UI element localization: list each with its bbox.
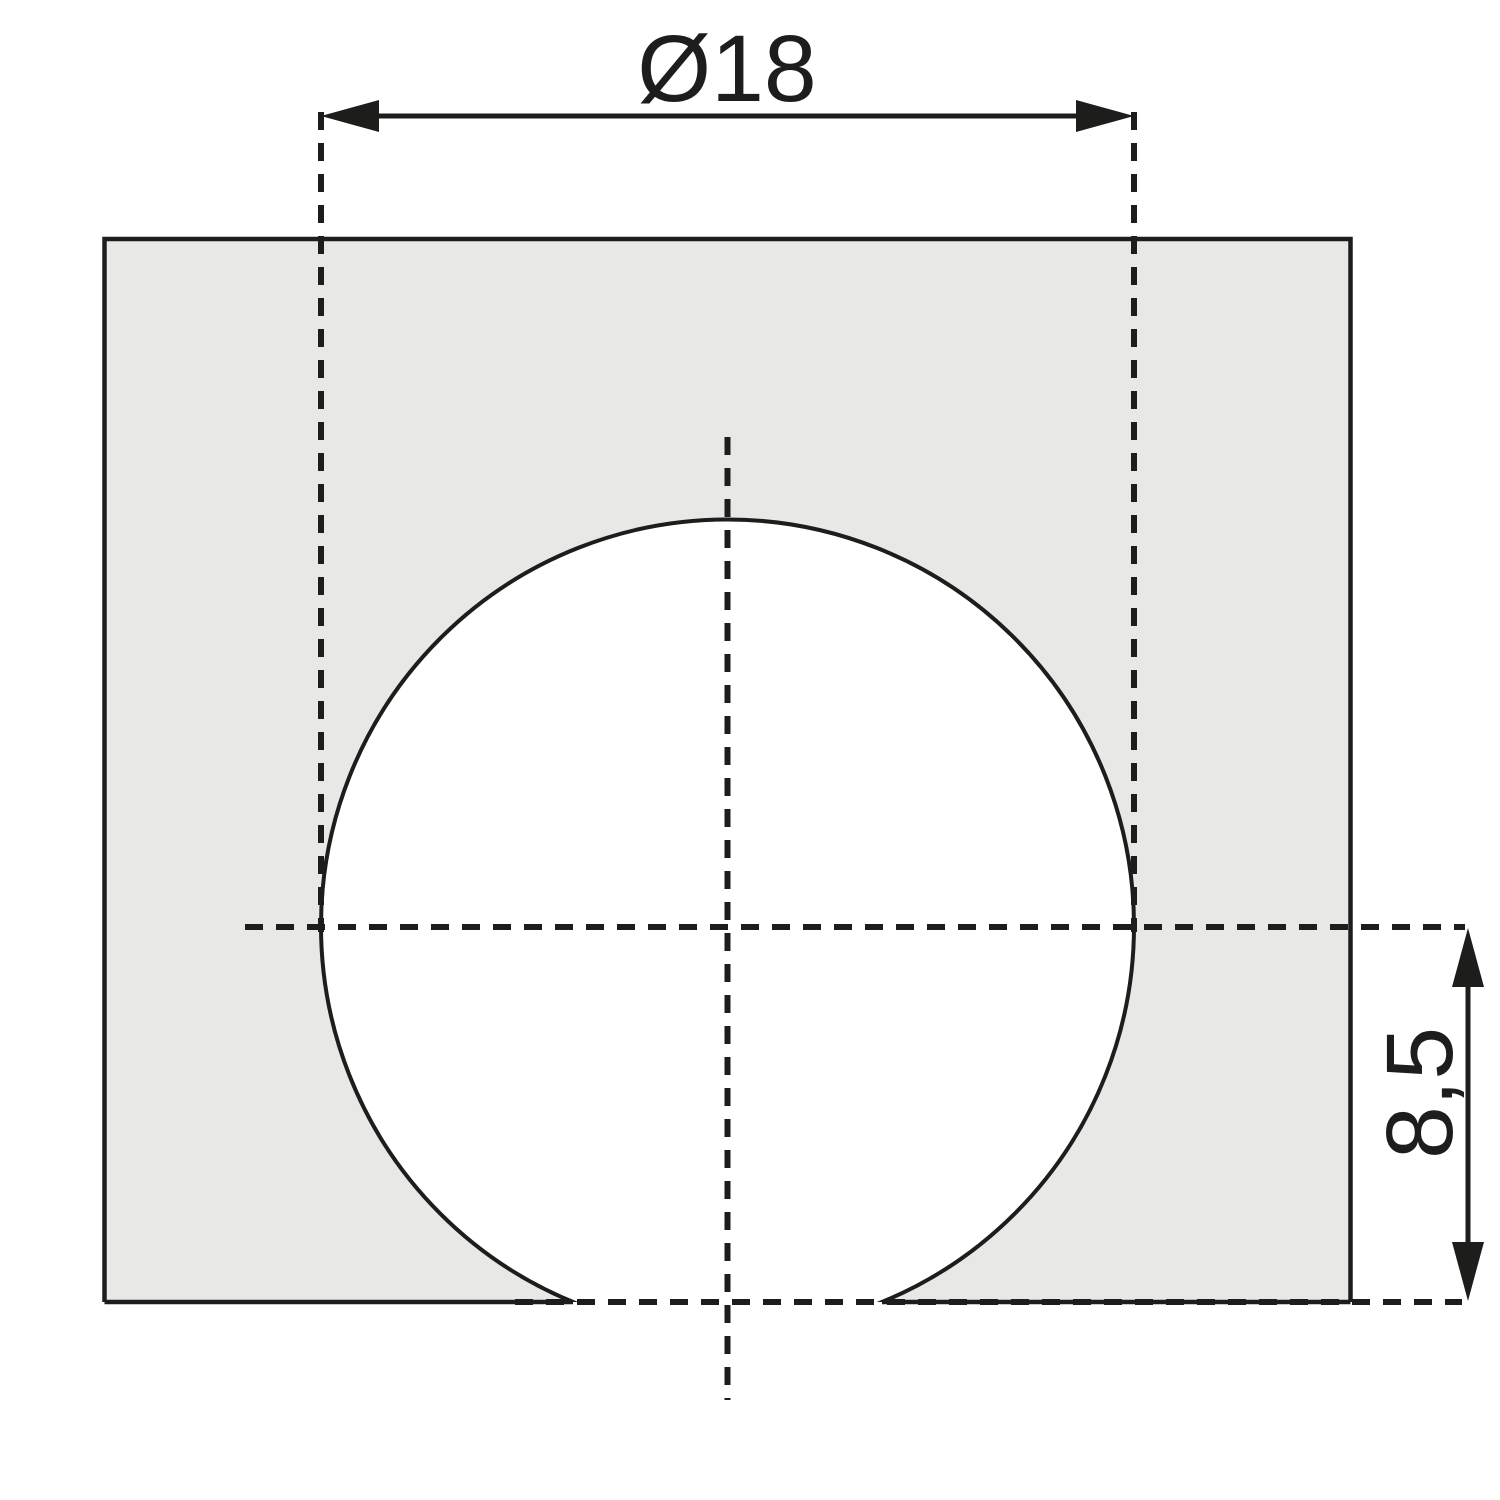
diameter-label: Ø18 xyxy=(637,16,817,122)
hole-dimension-drawing: Ø18 8,5 xyxy=(0,0,1500,1500)
arrowhead-down-icon xyxy=(1452,1242,1484,1301)
arrowhead-left-icon xyxy=(321,100,379,132)
arrowhead-up-icon xyxy=(1452,928,1484,987)
edge-distance-label: 8,5 xyxy=(1367,1027,1473,1159)
technical-drawing-canvas: Ø18 8,5 xyxy=(0,0,1500,1500)
arrowhead-right-icon xyxy=(1076,100,1134,132)
